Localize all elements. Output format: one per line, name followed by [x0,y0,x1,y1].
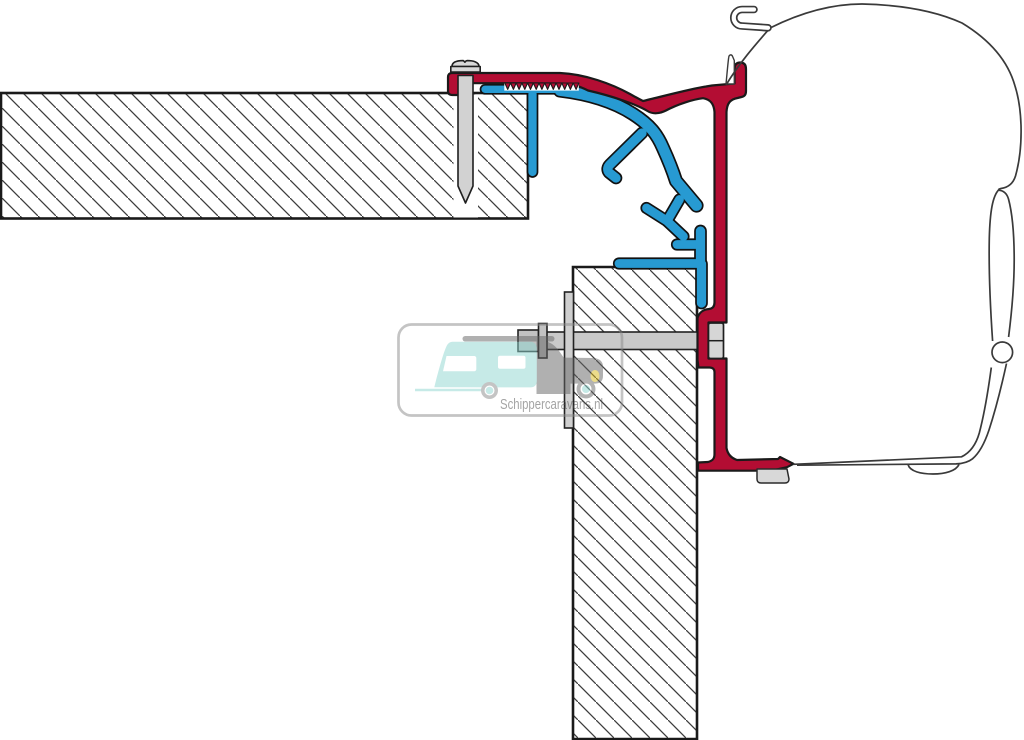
svg-text:Schippercaravans.nl: Schippercaravans.nl [500,396,603,413]
